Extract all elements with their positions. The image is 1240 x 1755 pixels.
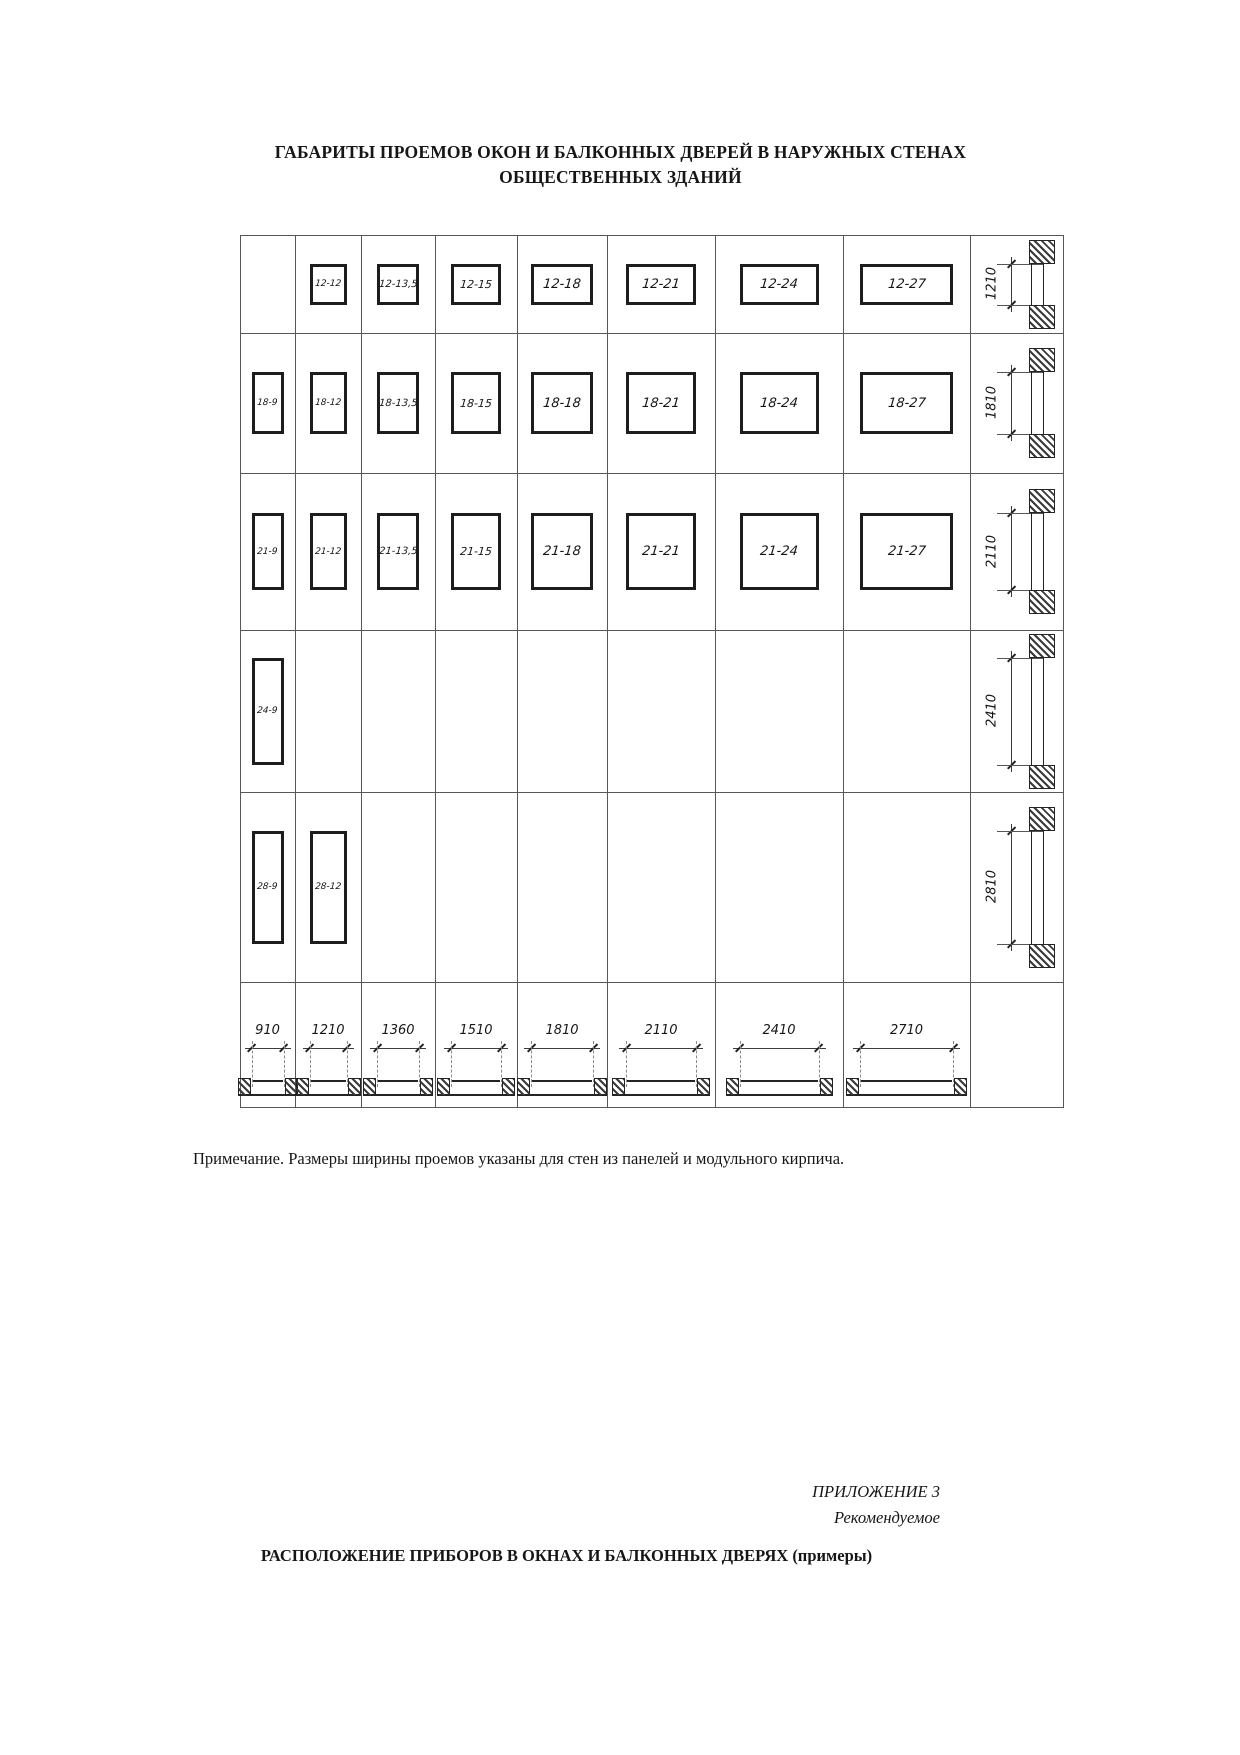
jamb-hatch-block — [348, 1078, 361, 1096]
jamb-hatch-block — [594, 1078, 607, 1096]
wall-hatch-block — [1029, 348, 1055, 372]
opening-box-label: 21-9 — [257, 547, 278, 557]
width-dim-label: 1360 — [358, 1023, 438, 1038]
height-dim-line — [1011, 651, 1012, 772]
opening-box: 18-15 — [451, 372, 501, 434]
opening-box: 12-12 — [310, 264, 347, 305]
height-dim-line — [1011, 824, 1012, 951]
sill-bottom-line — [518, 1094, 606, 1096]
opening-box-label: 18-18 — [542, 396, 581, 411]
opening-box-label: 21-18 — [542, 544, 581, 559]
opening-box: 21-13,5 — [377, 513, 419, 590]
grid-vline — [1063, 235, 1064, 1107]
opening-box-label: 21-27 — [887, 544, 926, 559]
opening-box: 12-24 — [740, 264, 819, 305]
opening-box-label: 21-12 — [314, 547, 341, 557]
sill-top-line — [741, 1080, 818, 1082]
width-dim-label: 1210 — [288, 1023, 368, 1038]
opening-box-label: 18-9 — [257, 398, 278, 408]
grid-vline — [607, 235, 608, 1107]
opening-box-label: 18-21 — [641, 396, 680, 411]
wall-hatch-block — [1029, 489, 1055, 513]
grid-vline — [435, 235, 436, 1107]
width-dim-label: 2410 — [739, 1023, 819, 1038]
grid-vline — [361, 235, 362, 1107]
width-dim-label: 1810 — [522, 1023, 602, 1038]
grid-vline — [295, 235, 296, 1107]
width-dim-label: 2110 — [621, 1023, 701, 1038]
opening-box: 21-15 — [451, 513, 501, 590]
jamb-frame — [1031, 513, 1044, 590]
opening-box: 24-9 — [252, 658, 284, 765]
opening-box: 28-12 — [310, 831, 347, 944]
opening-box-label: 21-21 — [641, 544, 680, 559]
opening-box: 18-9 — [252, 372, 284, 434]
opening-box: 18-24 — [740, 372, 819, 434]
jamb-hatch-block — [846, 1078, 859, 1096]
jamb-frame — [1031, 831, 1044, 944]
opening-box: 18-27 — [860, 372, 953, 434]
grid-hline — [240, 333, 1064, 334]
height-dim-label: 1810 — [985, 363, 1000, 443]
opening-box: 18-12 — [310, 372, 347, 434]
jamb-frame — [1031, 264, 1044, 305]
grid-vline — [715, 235, 716, 1107]
opening-box-label: 18-12 — [314, 398, 341, 408]
opening-box: 21-27 — [860, 513, 953, 590]
grid-vline — [970, 235, 971, 1107]
opening-box-label: 21-15 — [459, 545, 492, 558]
grid-hline — [240, 792, 1064, 793]
jamb-hatch-block — [820, 1078, 833, 1096]
jamb-hatch-block — [420, 1078, 433, 1096]
height-dim-label: 2810 — [985, 847, 1000, 927]
note-text: Примечание. Размеры ширины проемов указа… — [193, 1149, 844, 1169]
opening-box-label: 28-9 — [257, 882, 278, 892]
width-dim-label: 1510 — [436, 1023, 516, 1038]
wall-hatch-block — [1029, 305, 1055, 329]
doc-title: ГАБАРИТЫ ПРОЕМОВ ОКОН И БАЛКОННЫХ ДВЕРЕЙ… — [54, 140, 1187, 190]
grid-hline — [240, 235, 1064, 236]
opening-box-label: 21-24 — [759, 544, 798, 559]
jamb-hatch-block — [238, 1078, 251, 1096]
opening-box-label: 12-18 — [542, 277, 581, 292]
jamb-frame — [1031, 372, 1044, 434]
jamb-hatch-block — [296, 1078, 309, 1096]
wall-hatch-block — [1029, 590, 1055, 614]
sill-top-line — [861, 1080, 952, 1082]
wall-hatch-block — [1029, 634, 1055, 658]
height-dim-line — [1011, 506, 1012, 597]
opening-box: 12-13,5 — [377, 264, 419, 305]
sill-bottom-line — [613, 1094, 709, 1096]
opening-box: 12-18 — [531, 264, 593, 305]
opening-dimensions-table: 12-1212-13,512-1512-1812-2112-2412-2718-… — [240, 235, 1063, 1107]
jamb-hatch-block — [726, 1078, 739, 1096]
jamb-hatch-block — [954, 1078, 967, 1096]
height-dim-label: 2410 — [985, 671, 1000, 751]
opening-box-label: 28-12 — [314, 882, 341, 892]
opening-box-label: 18-13,5 — [378, 398, 418, 409]
opening-box: 21-21 — [626, 513, 696, 590]
opening-box-label: 24-9 — [257, 706, 278, 716]
opening-box: 18-21 — [626, 372, 696, 434]
opening-box: 21-24 — [740, 513, 819, 590]
height-dim-line — [1011, 365, 1012, 441]
width-dim-line — [524, 1048, 600, 1049]
jamb-frame — [1031, 658, 1044, 765]
wall-hatch-block — [1029, 944, 1055, 968]
height-dim-label: 2110 — [985, 511, 1000, 591]
jamb-hatch-block — [517, 1078, 530, 1096]
opening-box-label: 12-12 — [314, 279, 341, 289]
sill-top-line — [627, 1080, 695, 1082]
sill-top-line — [452, 1080, 500, 1082]
opening-box: 21-18 — [531, 513, 593, 590]
sill-top-line — [253, 1080, 283, 1082]
next-section-heading: РАСПОЛОЖЕНИЕ ПРИБОРОВ В ОКНАХ И БАЛКОННЫ… — [0, 1546, 1133, 1566]
sill-bottom-line — [847, 1094, 966, 1096]
opening-box-label: 18-27 — [887, 396, 926, 411]
opening-box-label: 21-13,5 — [378, 546, 418, 557]
opening-box: 12-21 — [626, 264, 696, 305]
opening-box-label: 12-13,5 — [378, 279, 418, 290]
height-dim-label: 1210 — [985, 244, 1000, 324]
grid-hline — [240, 1107, 1064, 1108]
opening-box: 21-9 — [252, 513, 284, 590]
opening-box: 12-15 — [451, 264, 501, 305]
grid-vline — [517, 235, 518, 1107]
sill-bottom-line — [727, 1094, 832, 1096]
grid-hline — [240, 473, 1064, 474]
opening-box: 28-9 — [252, 831, 284, 944]
appendix-title: ПРИЛОЖЕНИЕ 3 — [620, 1479, 940, 1505]
grid-vline — [843, 235, 844, 1107]
opening-box-label: 12-21 — [641, 277, 680, 292]
opening-box-label: 18-24 — [759, 396, 798, 411]
grid-hline — [240, 982, 1064, 983]
opening-box-label: 12-24 — [759, 277, 798, 292]
jamb-hatch-block — [437, 1078, 450, 1096]
jamb-hatch-block — [502, 1078, 515, 1096]
opening-box: 12-27 — [860, 264, 953, 305]
width-dim-label: 2710 — [867, 1023, 947, 1038]
jamb-hatch-block — [612, 1078, 625, 1096]
opening-box: 21-12 — [310, 513, 347, 590]
wall-hatch-block — [1029, 434, 1055, 458]
wall-hatch-block — [1029, 240, 1055, 264]
jamb-hatch-block — [363, 1078, 376, 1096]
wall-hatch-block — [1029, 765, 1055, 789]
opening-box-label: 12-27 — [887, 277, 926, 292]
jamb-hatch-block — [697, 1078, 710, 1096]
sill-top-line — [311, 1080, 346, 1082]
doc-title-line2: ОБЩЕСТВЕННЫХ ЗДАНИЙ — [54, 165, 1187, 190]
doc-title-line1: ГАБАРИТЫ ПРОЕМОВ ОКОН И БАЛКОННЫХ ДВЕРЕЙ… — [54, 140, 1187, 165]
opening-box: 18-13,5 — [377, 372, 419, 434]
wall-hatch-block — [1029, 807, 1055, 831]
width-dim-line — [619, 1048, 703, 1049]
document-page: ГАБАРИТЫ ПРОЕМОВ ОКОН И БАЛКОННЫХ ДВЕРЕЙ… — [0, 0, 1240, 1755]
appendix-block: ПРИЛОЖЕНИЕ 3 Рекомендуемое — [620, 1479, 940, 1531]
opening-box-label: 12-15 — [459, 278, 492, 291]
sill-top-line — [378, 1080, 418, 1082]
opening-box: 18-18 — [531, 372, 593, 434]
appendix-subtitle: Рекомендуемое — [620, 1505, 940, 1531]
grid-hline — [240, 630, 1064, 631]
opening-box-label: 18-15 — [459, 397, 492, 410]
sill-top-line — [532, 1080, 592, 1082]
width-dim-line — [853, 1048, 960, 1049]
grid-vline — [240, 235, 241, 1107]
width-dim-line — [733, 1048, 826, 1049]
